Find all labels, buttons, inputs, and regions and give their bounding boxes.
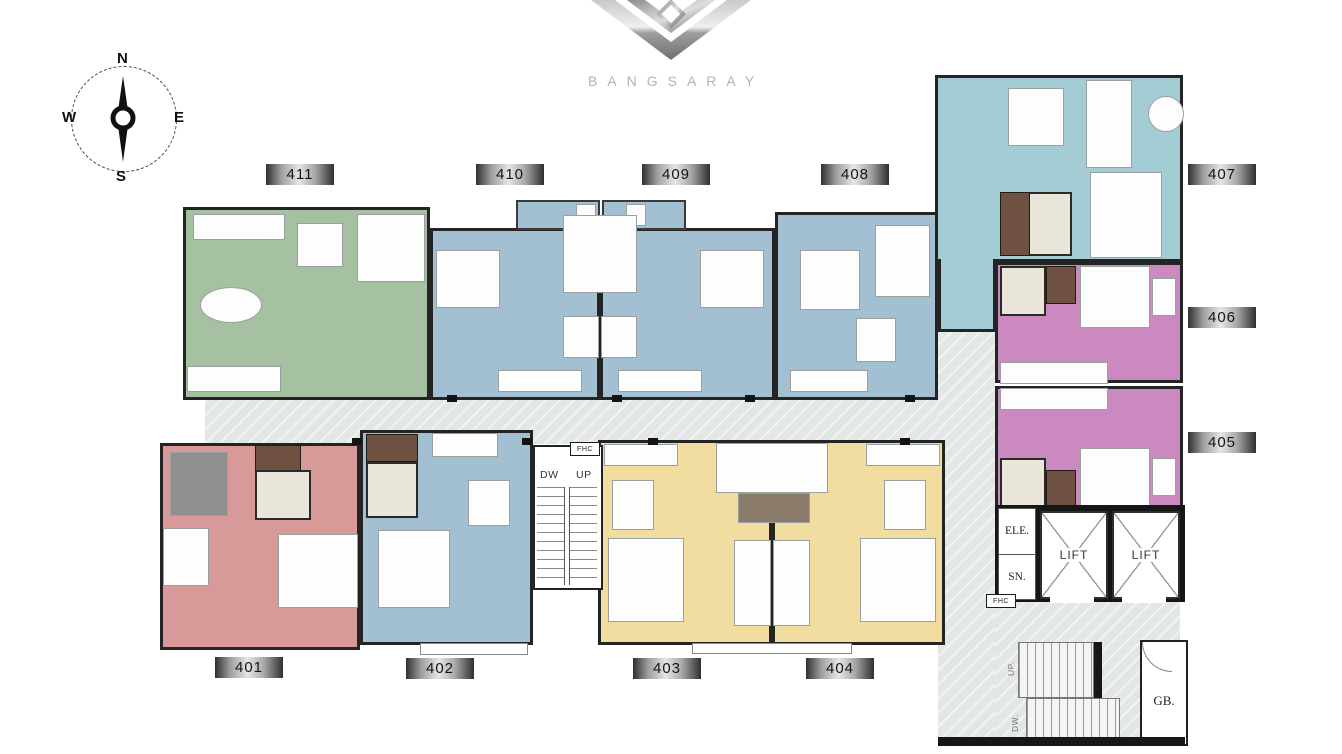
unit-label-408: 408 xyxy=(821,164,889,185)
bangsaray-logo-icon xyxy=(561,0,781,64)
bed xyxy=(608,538,684,622)
door xyxy=(745,395,755,402)
bed xyxy=(278,534,358,608)
bed xyxy=(1080,448,1150,510)
unit-label-409: 409 xyxy=(642,164,710,185)
wardrobe xyxy=(1000,192,1030,256)
brand-block: BANGSARAY xyxy=(561,0,781,88)
kitchen-counter xyxy=(432,433,498,457)
door-arc xyxy=(1142,642,1172,672)
kitchen-island xyxy=(1086,80,1132,168)
kitchen-counter xyxy=(618,370,702,392)
door xyxy=(612,395,622,402)
unit-area-407-foyer xyxy=(938,259,996,332)
stair-divider xyxy=(564,487,570,585)
dining-table xyxy=(563,316,599,358)
stair-wall xyxy=(1094,642,1102,698)
bed xyxy=(875,225,930,297)
bed xyxy=(773,540,810,626)
fire-hose-cabinet: FHC xyxy=(986,594,1016,608)
dining-table xyxy=(856,318,896,362)
service-shafts: ELE. SN. xyxy=(998,508,1036,600)
wardrobe-counter xyxy=(738,493,810,523)
sanitary-shaft-label: SN. xyxy=(999,554,1035,600)
lift-door-gap xyxy=(1050,595,1094,603)
corridor-vertical xyxy=(938,330,995,740)
balcony-403-404 xyxy=(692,643,852,654)
garbage-room: GB. xyxy=(1140,640,1188,746)
lift-door-gap xyxy=(1122,595,1166,603)
dining-table xyxy=(468,480,510,526)
round-table xyxy=(1148,96,1184,132)
door xyxy=(522,438,532,445)
wardrobe xyxy=(366,434,418,462)
unit-label-410: 410 xyxy=(476,164,544,185)
dining-table xyxy=(1008,88,1064,146)
lift-right: LIFT xyxy=(1112,511,1180,599)
lift-left: LIFT xyxy=(1040,511,1108,599)
dining-table xyxy=(601,316,637,358)
desk xyxy=(1152,458,1176,496)
compass-south-label: S xyxy=(116,168,126,185)
dining-table xyxy=(163,528,209,586)
lift-left-label: LIFT xyxy=(1057,548,1092,562)
bed xyxy=(860,538,936,622)
door xyxy=(648,438,658,445)
bed xyxy=(700,250,764,308)
stairwell-right-upper xyxy=(1018,642,1094,698)
tv-console xyxy=(170,452,228,516)
wardrobe xyxy=(255,445,301,471)
compass-rose: N E S W xyxy=(64,52,184,186)
floorplan-canvas: BANGSARAY N E S W xyxy=(0,0,1342,754)
stair-down-label: DW xyxy=(540,469,559,481)
corridor-horizontal xyxy=(205,400,940,444)
kitchen-counter xyxy=(790,370,868,392)
door xyxy=(900,438,910,445)
balcony-402 xyxy=(420,643,528,655)
unit-label-402: 402 xyxy=(406,658,474,679)
kitchen-counter xyxy=(1000,362,1108,384)
unit-label-407: 407 xyxy=(1188,164,1256,185)
kitchen-counter xyxy=(187,366,281,392)
bathroom xyxy=(255,470,311,520)
unit-label-401: 401 xyxy=(215,657,283,678)
dining-table xyxy=(297,223,343,267)
lift-right-label: LIFT xyxy=(1129,548,1164,562)
outer-wall-bottom xyxy=(938,737,1185,746)
desk xyxy=(1152,278,1176,316)
fire-hose-cabinet: FHC xyxy=(570,442,600,456)
brand-name: BANGSARAY xyxy=(561,73,781,89)
compass-needle-icon xyxy=(64,52,184,186)
bathroom xyxy=(1000,458,1046,508)
kitchen-counter xyxy=(866,444,940,466)
electrical-shaft-label: ELE. xyxy=(999,509,1035,554)
bed xyxy=(378,530,450,608)
stair-down-label: DW. xyxy=(1010,714,1020,732)
bed xyxy=(800,250,860,310)
shared-vanity xyxy=(716,443,828,493)
bed xyxy=(734,540,771,626)
unit-label-405: 405 xyxy=(1188,432,1256,453)
bathroom xyxy=(1000,266,1046,316)
bed xyxy=(1090,172,1162,258)
stairwell-right-lower xyxy=(1026,698,1120,742)
dining-table xyxy=(884,480,926,530)
kitchen-counter xyxy=(498,370,582,392)
garbage-room-label: GB. xyxy=(1142,693,1186,709)
bathroom xyxy=(366,462,418,518)
compass-west-label: W xyxy=(62,109,76,126)
unit-label-403: 403 xyxy=(633,658,701,679)
unit-label-404: 404 xyxy=(806,658,874,679)
stairwell-center: DW UP xyxy=(533,445,603,590)
stair-up-label: UP. xyxy=(1006,661,1016,676)
unit-label-411: 411 xyxy=(266,164,334,185)
kitchen-counter xyxy=(604,444,678,466)
bed xyxy=(357,214,425,282)
wardrobe xyxy=(1046,266,1076,304)
compass-north-label: N xyxy=(117,50,128,67)
door xyxy=(905,395,915,402)
bed xyxy=(563,215,637,293)
door xyxy=(352,438,362,445)
stair-up-label: UP xyxy=(576,469,592,481)
kitchen-counter xyxy=(1000,388,1108,410)
bed xyxy=(1080,266,1150,328)
bed xyxy=(436,250,500,308)
dining-table xyxy=(612,480,654,530)
door xyxy=(447,395,457,402)
sofa xyxy=(193,214,285,240)
wardrobe xyxy=(1046,470,1076,508)
rug xyxy=(200,287,262,323)
unit-label-406: 406 xyxy=(1188,307,1256,328)
compass-east-label: E xyxy=(174,109,184,126)
